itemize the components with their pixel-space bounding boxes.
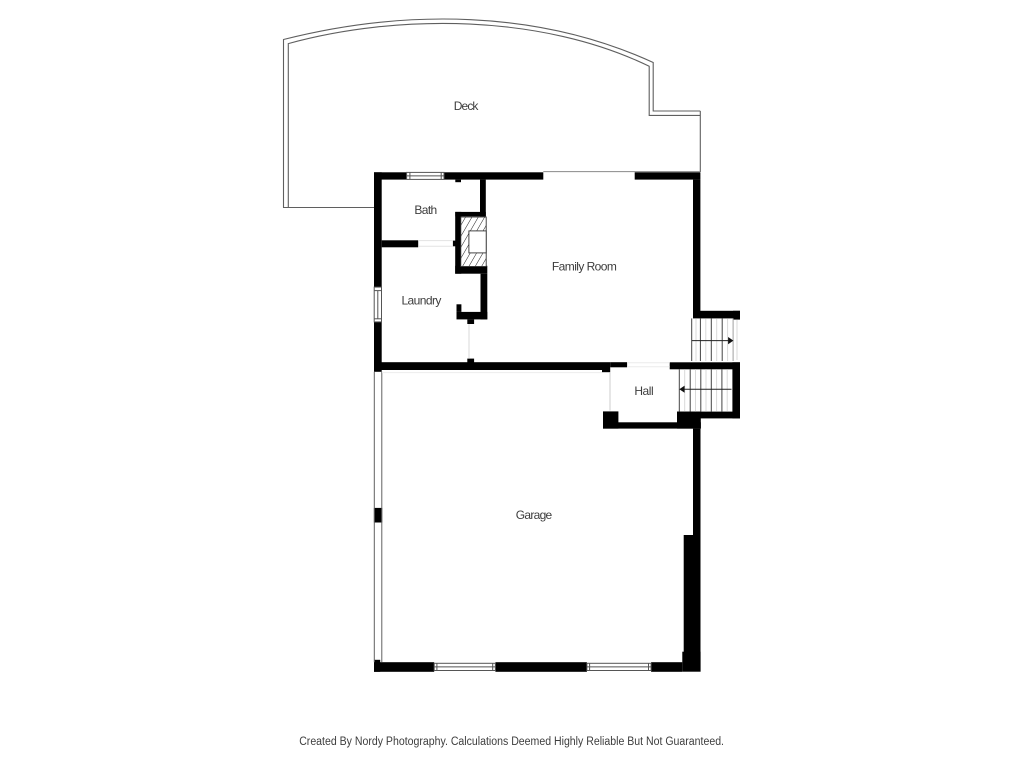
svg-text:Family Room: Family Room bbox=[552, 259, 617, 273]
svg-text:Garage: Garage bbox=[516, 508, 553, 522]
svg-text:Laundry: Laundry bbox=[401, 294, 441, 308]
svg-text:Created By Nordy Photography.: Created By Nordy Photography. Calculatio… bbox=[299, 736, 724, 748]
svg-text:Hall: Hall bbox=[634, 384, 653, 398]
svg-text:Bath: Bath bbox=[414, 203, 437, 217]
svg-text:Deck: Deck bbox=[454, 99, 480, 113]
